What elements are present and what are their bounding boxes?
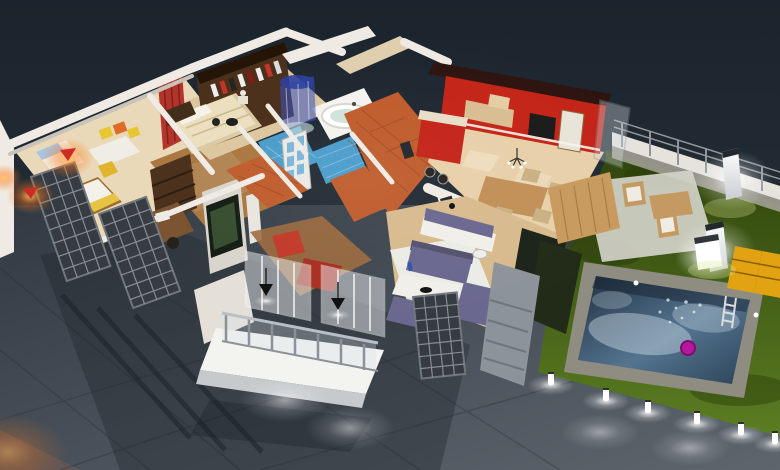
- pool-edge-light: [634, 281, 639, 286]
- floor-light-pool: [650, 430, 730, 466]
- grass-light-spill: [704, 198, 756, 218]
- water-foam: [592, 291, 632, 309]
- ambient-haze: [40, 30, 680, 330]
- grass-light-spill: [688, 261, 736, 279]
- floor-light-pool: [305, 406, 395, 450]
- pool-float: [681, 341, 695, 355]
- render-canvas: [0, 0, 780, 470]
- floor-light-pool: [560, 414, 640, 450]
- pool-edge-light: [754, 313, 759, 318]
- floorplan-render: [0, 0, 780, 470]
